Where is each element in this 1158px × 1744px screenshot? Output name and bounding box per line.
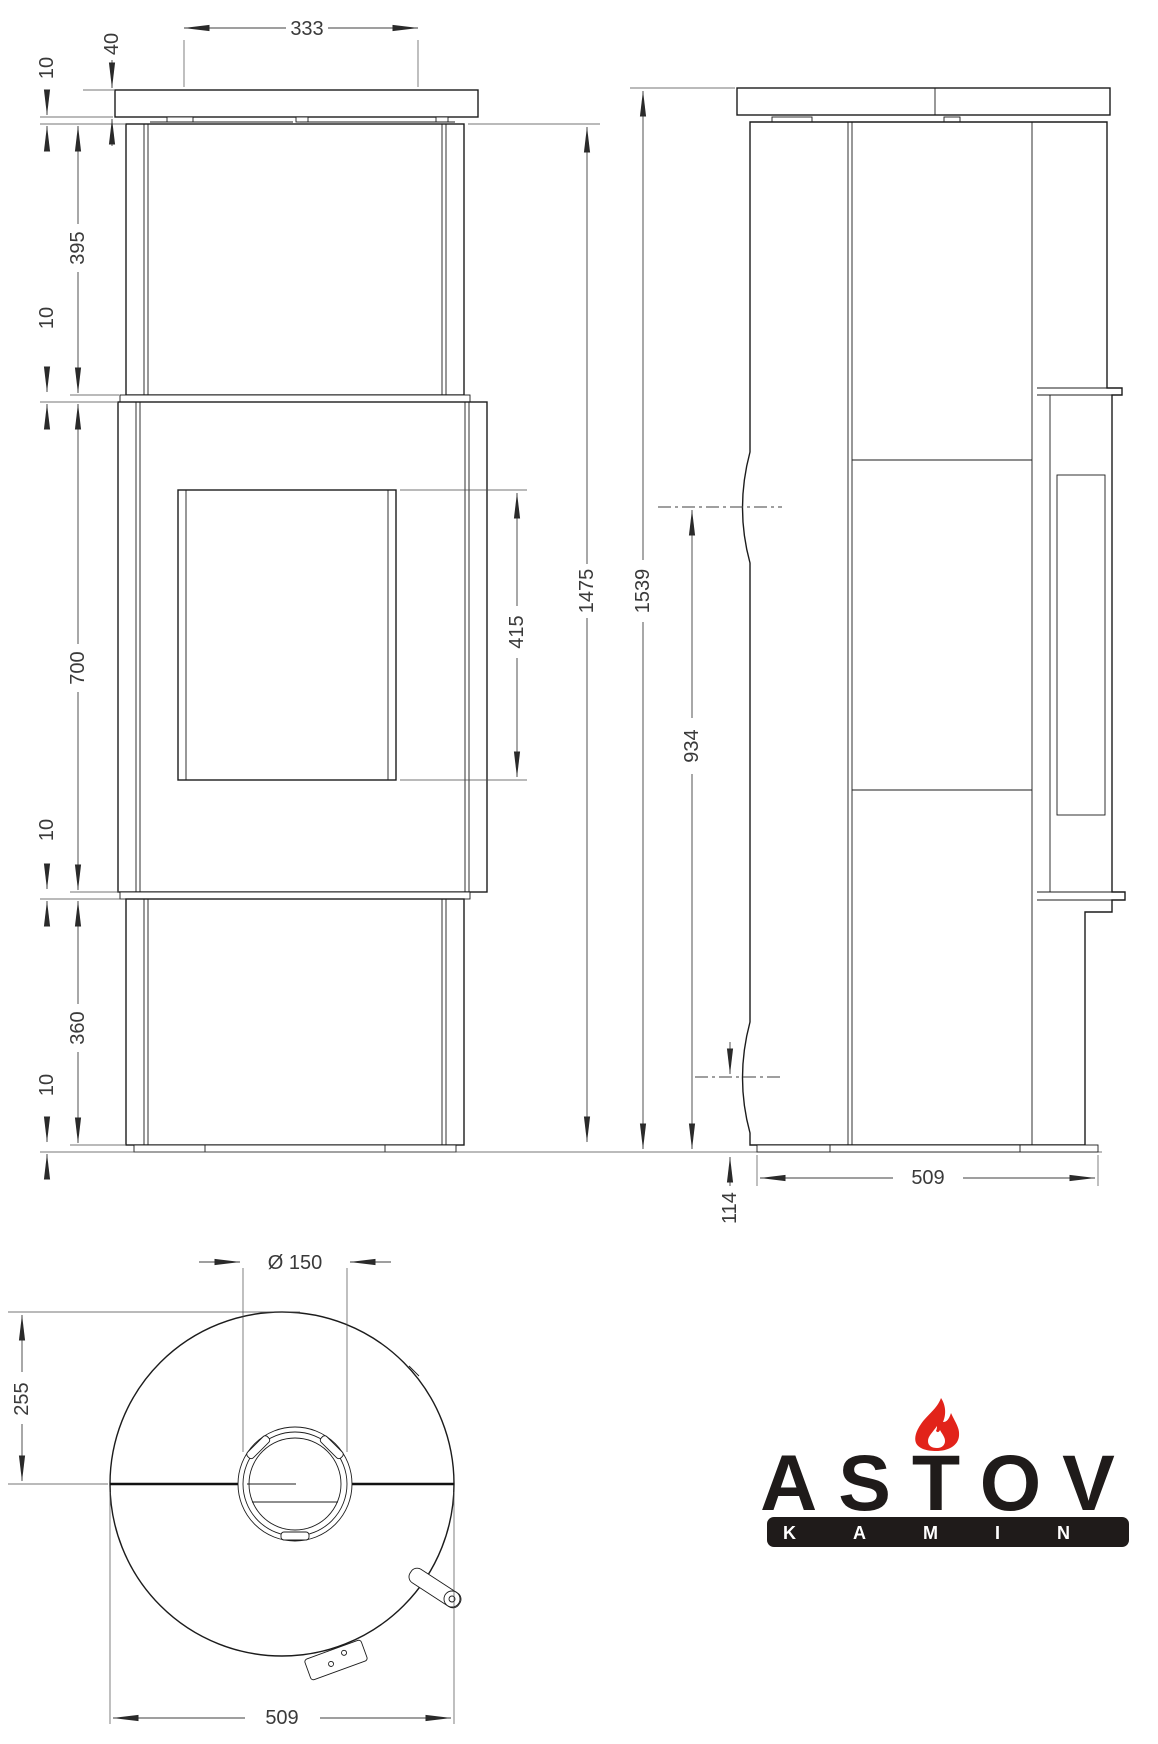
front-base-plate: [134, 1145, 456, 1152]
dim-label-base: 10: [36, 1074, 58, 1096]
dim-label-depth: 509: [911, 1167, 944, 1189]
dim-label-gap-upper: 10: [36, 307, 58, 329]
drawing-canvas: 333 40 10 395 10 700 10 360 10 415 1475: [0, 0, 1158, 1744]
dim-label-glass-height: 415: [506, 615, 528, 648]
side-body-outline: [743, 122, 1126, 1145]
front-lower-shelf: [120, 892, 470, 899]
front-upper-shelf: [120, 395, 470, 402]
side-top-plate: [737, 88, 1110, 115]
plate-clip: [167, 117, 193, 122]
dim-label-section-middle: 700: [67, 651, 89, 684]
dim-label-body-height: 1475: [576, 569, 598, 614]
dim-label-section-bottom: 360: [67, 1011, 89, 1044]
collar-tab: [281, 1532, 309, 1540]
top-view: [110, 1312, 464, 1681]
front-upper-section: [126, 124, 464, 395]
dim-label-width: 509: [265, 1707, 298, 1729]
technical-drawing: 333 40 10 395 10 700 10 360 10 415 1475: [0, 0, 1158, 1744]
front-top-plate: [115, 90, 478, 117]
brand-logo: ASTOV KAMIN: [760, 1398, 1136, 1547]
dim-label-gap-lower: 10: [36, 819, 58, 841]
dim-label-rear-offset: 255: [11, 1382, 33, 1415]
plate-clip: [944, 117, 960, 122]
dim-label-flue-center-height: 934: [681, 729, 703, 762]
door-glass: [178, 490, 396, 780]
dim-label-flue-diameter: Ø 150: [268, 1252, 322, 1274]
handle-pivot: [444, 1591, 460, 1607]
plate-clip: [772, 117, 812, 122]
plate-clip: [296, 117, 308, 122]
dim-label-total-height: 1539: [632, 569, 654, 614]
dim-label-plate-thickness: 40: [101, 33, 123, 55]
side-base-plate: [757, 1145, 1098, 1152]
brand-name: ASTOV: [760, 1438, 1136, 1527]
plate-clip: [436, 117, 448, 122]
side-view: [658, 88, 1125, 1152]
dim-label-lower-outlet-height: 114: [719, 1192, 741, 1224]
brand-subtitle: KAMIN: [783, 1523, 1127, 1543]
front-view: [115, 90, 487, 1152]
dim-label-section-top: 395: [67, 231, 89, 264]
dim-label-gap-plate: 10: [36, 57, 58, 79]
dim-label-top-width: 333: [290, 18, 323, 40]
front-lower-section: [126, 899, 464, 1145]
